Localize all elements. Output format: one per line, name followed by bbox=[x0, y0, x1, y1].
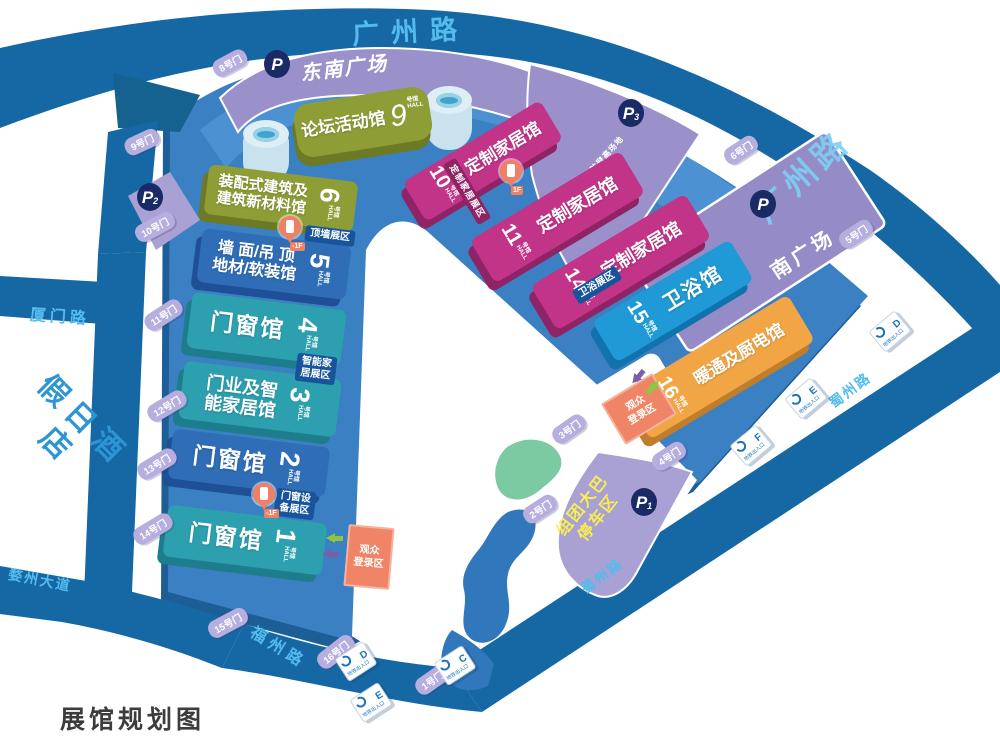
zone-equip-l2: 备展区 bbox=[279, 502, 310, 517]
hall-9-name-l1: 论坛活动馆 bbox=[300, 109, 387, 141]
hall-1-name-l1: 门窗馆 bbox=[187, 519, 265, 554]
metro-logo-icon bbox=[735, 441, 746, 452]
hall-number-suffix-en: HALL bbox=[407, 102, 424, 111]
hall-number-digit: 1 bbox=[273, 527, 298, 545]
hall-number-digit: 4 bbox=[295, 316, 320, 334]
zone-smart-home: 智能家居展区 bbox=[294, 353, 337, 386]
parking-letter: P bbox=[623, 105, 634, 122]
hall-1-name: 门窗馆 bbox=[187, 520, 265, 555]
pin-floor-hall6: -1F bbox=[290, 242, 305, 251]
cylinder-building-right bbox=[426, 86, 472, 150]
pin-floor-hall1: -1F bbox=[264, 509, 279, 518]
metro-logo-icon bbox=[874, 327, 885, 338]
hall-9-name: 论坛活动馆 bbox=[300, 109, 387, 141]
hall-number-digit: 2 bbox=[277, 450, 302, 468]
road-label-xiamen: 厦门路 bbox=[29, 301, 91, 329]
hall-9-number: 9号馆HALL bbox=[388, 95, 428, 134]
hall-11-number: 11号馆HALL bbox=[499, 221, 534, 263]
parking-sub-1: 1 bbox=[647, 501, 652, 511]
metro-logo-icon bbox=[438, 659, 450, 671]
hall-1-number: 1号馆HALL bbox=[271, 527, 298, 563]
map-title: 展馆规划图 bbox=[60, 700, 205, 736]
metro-logo-icon bbox=[354, 696, 366, 708]
hall-number-suffix-cn: 号馆 bbox=[292, 469, 300, 486]
hall-number-digit: 5 bbox=[307, 252, 332, 270]
parking-letter: P bbox=[142, 189, 153, 206]
hall-3-name: 门业及智能家居馆 bbox=[203, 372, 279, 421]
hall-2-name: 门窗馆 bbox=[191, 443, 269, 478]
parking-icon-south: P bbox=[750, 190, 776, 218]
arrow-green-left bbox=[330, 536, 343, 541]
parking-icon-southeast: P bbox=[264, 50, 290, 78]
entrance-pin-hall10 bbox=[500, 160, 522, 182]
hall-number-suffix-cn: 号馆 bbox=[288, 546, 296, 563]
cylinder-hole bbox=[253, 127, 279, 142]
entrance-pin-hall6 bbox=[279, 216, 301, 238]
hall-4-number: 4号馆HALL bbox=[293, 316, 320, 352]
hall-3-number: 3号馆HALL bbox=[285, 386, 312, 422]
pin-floor-hall10: 1F bbox=[511, 186, 523, 195]
hall-6-name: 装配式建筑及建筑新材料馆 bbox=[215, 174, 308, 218]
parking-letter: P bbox=[636, 494, 647, 511]
exhibition-map: 广州路 广州路 厦门路 婺州大道 福州路 蜀州路 蜀州路 假日酒店 P 东南广场… bbox=[0, 0, 1000, 745]
hall-15-number: 15号馆HALL bbox=[624, 298, 659, 341]
entrance-pin-hall1 bbox=[253, 483, 275, 505]
hall-5-number: 5号馆HALL bbox=[305, 252, 332, 288]
zone-door-window-equip: 门窗设备展区 bbox=[273, 488, 316, 521]
arrow-purple-left bbox=[326, 552, 339, 557]
parking-icon-p2: P2 bbox=[137, 183, 163, 211]
parking-sub-2: 2 bbox=[153, 196, 158, 206]
base-map-shapes bbox=[0, 0, 1000, 745]
parking-icon-p3: P3 bbox=[618, 99, 644, 127]
hall-2-number: 2号馆HALL bbox=[275, 450, 302, 486]
hall-4-name: 门窗馆 bbox=[209, 309, 287, 344]
cylinder-hole bbox=[436, 93, 462, 108]
hall-2-name-l1: 门窗馆 bbox=[191, 442, 269, 477]
registration-l2: 登录区 bbox=[353, 556, 384, 572]
hall-4-name-l1: 门窗馆 bbox=[209, 308, 287, 343]
hall-6-number: 6号馆HALL bbox=[315, 186, 342, 222]
parking-icon-p1: P1 bbox=[631, 488, 657, 516]
road-label-guangzhou-top: 广州路 bbox=[351, 7, 470, 52]
metro-logo-icon bbox=[790, 394, 801, 405]
metro-logo-icon bbox=[339, 655, 351, 667]
hall-number-digit: 3 bbox=[287, 386, 312, 404]
parking-sub-3: 3 bbox=[634, 112, 639, 122]
zone-smart-l2: 居展区 bbox=[300, 367, 331, 382]
hall-number-digit: 6 bbox=[317, 186, 342, 204]
visitor-registration-left: 观众 登录区 bbox=[343, 524, 394, 590]
parking-letter: P bbox=[271, 56, 282, 73]
parking-letter: P bbox=[757, 196, 768, 213]
